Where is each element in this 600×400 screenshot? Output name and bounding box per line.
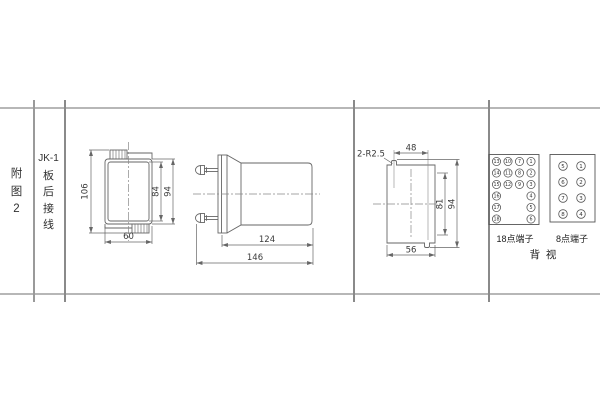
dim-84-label: 84 [152, 186, 162, 197]
front-view-drawing: 106 84 94 60 [75, 138, 190, 250]
screw-terminal-bottom [196, 214, 219, 223]
model-label-line: 线 [33, 217, 64, 234]
terminal-number: 7 [561, 196, 565, 202]
terminal-number: 6 [561, 180, 565, 186]
terminal-number: 18 [493, 217, 499, 223]
terminal-number: 13 [493, 159, 499, 165]
dim-146-label: 146 [247, 253, 263, 263]
terminal-number: 1 [579, 164, 583, 170]
cutout-centerlines [373, 150, 443, 240]
terminal-number: 16 [493, 194, 499, 200]
terminal-number: 6 [529, 217, 532, 223]
dim-56-label: 56 [406, 246, 417, 256]
terminal-number: 10 [505, 159, 511, 165]
figure-page: 附 图 2 JK-1 板 后 接 线 [0, 0, 600, 400]
table-rule-bottom [0, 293, 600, 295]
dim-81-label: 81 [436, 199, 446, 210]
terminal-number: 7 [518, 159, 521, 165]
terminal-number: 8 [561, 212, 565, 218]
terminal-number: 9 [518, 182, 521, 188]
terminal-number: 12 [505, 182, 511, 188]
terminal-18pt-circles [492, 157, 535, 223]
figure-label-char: 图 [0, 184, 33, 202]
screw-terminal-top [196, 166, 219, 175]
terminal-number: 8 [518, 171, 521, 177]
terminal-number: 14 [493, 171, 499, 177]
side-view-drawing: 124 146 [193, 140, 323, 270]
terminal-number: 4 [529, 194, 532, 200]
terminal-number: 15 [493, 182, 499, 188]
slot-callout-label: 2-R2.5 [357, 150, 385, 160]
terminal-18pt-numbers: 13 14 15 16 17 18 10 11 12 7 8 9 1 2 3 4… [493, 159, 532, 223]
terminal-8pt-box [550, 155, 595, 223]
terminal-8pt-circles [559, 162, 586, 219]
model-label-line: 板 [33, 168, 64, 185]
terminal-18pt-diagram: 13 14 15 16 17 18 10 11 12 7 8 9 1 2 3 4… [486, 152, 544, 230]
model-label-line: 后 [33, 184, 64, 201]
figure-label-char: 2 [0, 201, 33, 219]
model-label-line: JK-1 [33, 151, 64, 168]
terminal-8pt-diagram: 5 6 7 8 1 2 3 4 [546, 152, 598, 230]
terminal-18pt-label: 18点端子 [486, 232, 544, 245]
dim-94-label: 94 [164, 186, 174, 197]
table-rule-top [0, 107, 600, 109]
dim-48-label: 48 [406, 144, 417, 154]
dim-94b-label: 94 [448, 199, 458, 210]
figure-label-char: 附 [0, 166, 33, 184]
terminal-number: 5 [529, 205, 532, 211]
terminal-number: 1 [529, 159, 532, 165]
model-wiring-label: JK-1 板 后 接 线 [33, 151, 64, 234]
dim-106-label: 106 [81, 183, 91, 199]
rear-view-label: 背 视 [503, 247, 583, 262]
terminal-number: 2 [579, 180, 583, 186]
terminal-number: 3 [529, 182, 532, 188]
panel-cutout-drawing: 2-R2.5 48 81 94 56 [353, 143, 473, 268]
terminal-number: 3 [579, 196, 583, 202]
terminal-number: 2 [529, 171, 532, 177]
terminal-number: 11 [505, 171, 511, 177]
model-label-line: 接 [33, 201, 64, 218]
terminal-8pt-label: 8点端子 [546, 232, 598, 245]
dim-124-label: 124 [259, 235, 275, 245]
figure-number-label: 附 图 2 [0, 166, 33, 219]
terminal-number: 5 [561, 164, 565, 170]
terminal-number: 17 [493, 205, 499, 211]
table-rule-v2 [64, 100, 66, 302]
terminal-number: 4 [579, 212, 583, 218]
dim-60-label: 60 [123, 232, 134, 242]
